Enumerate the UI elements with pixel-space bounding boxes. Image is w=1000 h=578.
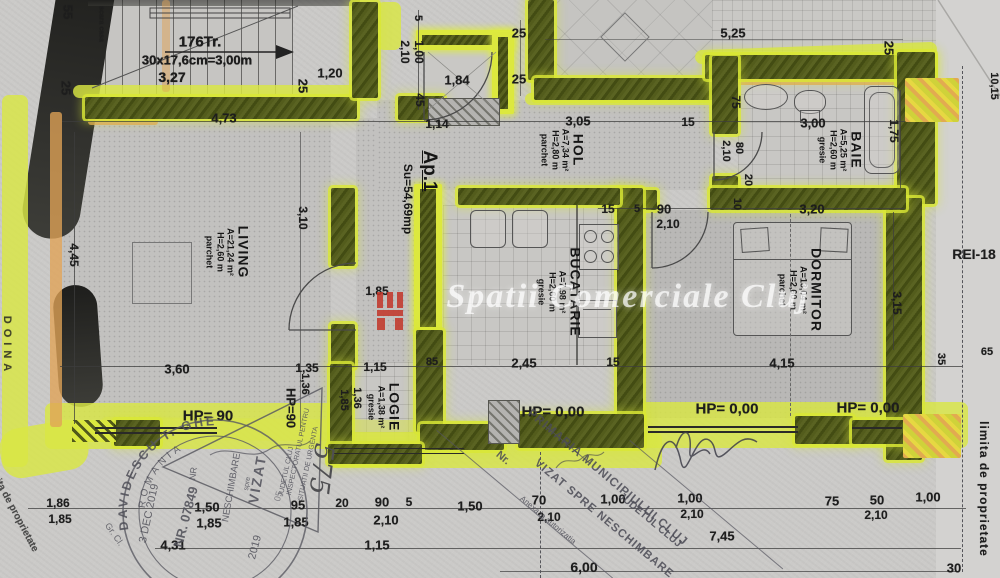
dim-label: 2,10 xyxy=(656,217,679,231)
dim-label: 1,20 xyxy=(317,66,342,81)
dim-label: 35 xyxy=(935,353,947,365)
isu-year: 2019 xyxy=(246,534,264,561)
property-limit-label-left: limita de proprietate xyxy=(0,464,40,554)
stamp-arc-fragment: DOINA xyxy=(1,316,13,376)
dim-label: 1,15 xyxy=(364,538,389,553)
dim-label: 25 xyxy=(512,26,526,41)
dim-label: 2,10 xyxy=(864,508,887,522)
room-info: H=2,60 m xyxy=(828,129,838,172)
logo-bar xyxy=(377,292,383,308)
dim-label: 5,25 xyxy=(720,26,745,41)
dim-label: 1,15 xyxy=(363,360,386,374)
dim-label: 3,15 xyxy=(890,291,904,314)
dim-label: 15 xyxy=(606,355,619,369)
dim-label: 15 xyxy=(681,115,694,129)
room-info: H=2,60 m xyxy=(215,226,225,279)
dim-label: 3,10 xyxy=(296,206,310,229)
dim-label: 1,00 xyxy=(915,490,940,505)
room-label-baie: BAIEA=5,25 m²H=2,60 mgresie xyxy=(817,129,864,172)
dim-label: 85 xyxy=(426,356,438,368)
dim-label: 5 xyxy=(406,495,413,509)
dim-label: 50 xyxy=(870,493,884,508)
dim-label: 1,85 xyxy=(48,512,71,526)
dim-label: 1,00 xyxy=(412,40,426,63)
dim-label: 1,86 xyxy=(46,496,69,510)
dim-label: 5 xyxy=(412,15,424,21)
hp-label: HP= 0,00 xyxy=(837,400,900,417)
dim-label: 90 xyxy=(657,202,671,217)
dim-label: 4,73 xyxy=(211,111,236,126)
dim-label: 3,20 xyxy=(799,202,824,217)
dim-label: 80 xyxy=(733,142,745,154)
room-info: A=21,24 m² xyxy=(225,226,235,279)
dim-label: 25 xyxy=(882,41,897,55)
hp-label: HP= 0,00 xyxy=(696,401,759,418)
dim-label: 1,14 xyxy=(425,117,448,131)
room-info: parchet xyxy=(539,129,549,172)
room-info: gresie xyxy=(366,383,376,432)
watermark-text: Spatii Comerciale Cluj xyxy=(446,278,809,316)
room-name: LIVING xyxy=(235,226,251,279)
logo-bar xyxy=(387,292,393,308)
dim-label: 3,05 xyxy=(565,114,590,129)
dim-label: 2,10 xyxy=(398,40,412,63)
isu-neschimbare: NESCHIMBARE xyxy=(220,452,243,523)
dim-label: 25 xyxy=(59,81,74,95)
watermark-logo-icon xyxy=(377,292,403,330)
room-label-living: LIVINGA=21,24 m²H=2,60 mparchet xyxy=(204,226,251,279)
dim-label: 4,45 xyxy=(67,243,81,266)
dim-label: 15 xyxy=(601,202,614,216)
dim-label: 3,60 xyxy=(164,362,189,377)
logo-bar xyxy=(377,310,403,316)
isu-stamp: INSPECTORATUL PENTRU SITUATII DE URGENTA… xyxy=(140,380,340,578)
dim-label: 10 xyxy=(731,198,743,210)
dim-label: 90 xyxy=(375,495,389,510)
dim-label: 1,36 xyxy=(351,387,363,408)
stair-side-label: scara casa xyxy=(98,6,105,42)
stair-spec-label: 30x17,6cm=3,00m xyxy=(142,53,252,68)
dim-label: 4,15 xyxy=(769,356,794,371)
room-name: BAIE xyxy=(848,129,864,172)
rei-label: REI-18 xyxy=(952,246,996,262)
dim-label: 25 xyxy=(296,79,311,93)
room-label-hol: HOLA=7,34 m²H=2,80 mparchet xyxy=(539,129,586,172)
dim-label: 5 xyxy=(634,203,640,215)
floor-plan-scan: Ap.1 Su=54,69mp scara casa limita de pro… xyxy=(0,0,1000,578)
dim-label: 25 xyxy=(512,72,526,87)
dim-label: 75 xyxy=(825,494,839,509)
dim-label: 20 xyxy=(742,174,754,186)
room-info: A=1,38 m² xyxy=(376,383,386,432)
dim-label: 65 xyxy=(981,346,993,358)
room-info: H=2,80 m xyxy=(550,129,560,172)
dim-label: 55 xyxy=(61,5,76,19)
logo-bar xyxy=(377,318,385,330)
room-info: A=7,34 m² xyxy=(560,129,570,172)
logo-bar xyxy=(397,292,403,308)
dim-label: 1,50 xyxy=(457,499,482,514)
room-name: DORMITOR xyxy=(808,248,824,332)
dim-label: 1,75 xyxy=(887,119,901,142)
room-name: HOL xyxy=(570,129,586,172)
isu-nr: NR xyxy=(187,466,199,481)
apartment-area: Su=54,69mp xyxy=(401,164,415,234)
room-label-logie: LOGIEA=1,38 m²gresie xyxy=(366,383,403,432)
room-info: gresie xyxy=(817,129,827,172)
dim-label: 30 xyxy=(947,561,961,576)
dim-label: 2,10 xyxy=(720,140,732,161)
dim-label: 2,45 xyxy=(511,356,536,371)
dim-label: 2,10 xyxy=(373,513,398,528)
dim-label: 75 xyxy=(729,95,743,108)
room-info: parchet xyxy=(204,226,214,279)
property-limit-label-right: limita de proprietate xyxy=(977,421,991,557)
room-name: LOGIE xyxy=(386,383,402,432)
dim-label: 45 xyxy=(413,93,427,106)
dim-label: 10,15 xyxy=(988,72,1000,100)
apartment-label: Ap.1 xyxy=(418,150,440,191)
dim-label: 2,10 xyxy=(680,507,703,521)
logo-bar xyxy=(395,318,403,330)
room-info: A=5,25 m² xyxy=(838,129,848,172)
stair-width-label: 3,27 xyxy=(158,69,185,85)
stair-treads-label: 176Tr. xyxy=(179,34,222,51)
dim-label: 1,84 xyxy=(444,73,469,88)
dim-label: 7,45 xyxy=(709,529,734,544)
